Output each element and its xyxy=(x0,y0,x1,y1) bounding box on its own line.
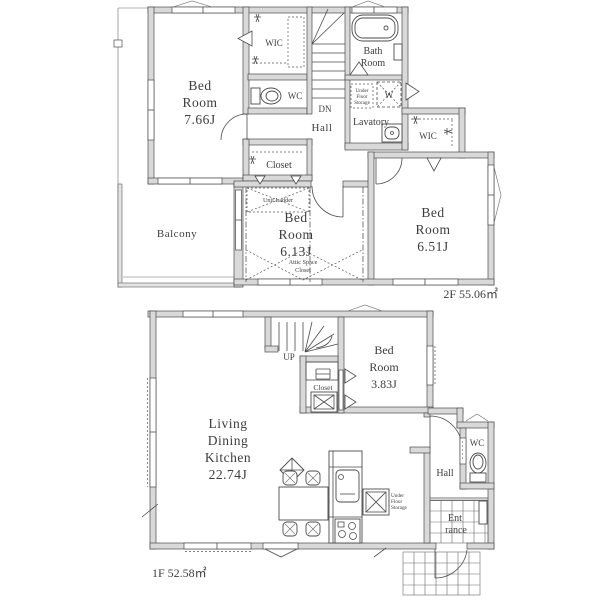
wic2-opening-icon xyxy=(427,158,441,171)
room-label-entrance: rance xyxy=(445,525,467,536)
room-label-bedroom-613: Room xyxy=(278,227,313,242)
room-label-bedroom-383: Room xyxy=(369,360,399,374)
stair-landing xyxy=(306,362,338,380)
wall xyxy=(467,543,494,549)
wall xyxy=(300,356,306,413)
wall xyxy=(248,108,307,114)
unit-ladder-label: Unit Ladder xyxy=(263,197,293,204)
underfloor-storage-box-1f xyxy=(363,489,389,515)
wall xyxy=(410,447,430,453)
floor1-area-label: 1F 52.58㎡ xyxy=(152,566,207,580)
room-label-bedroom-383: Bed xyxy=(374,343,393,357)
eaves-outline xyxy=(118,8,149,284)
downpipe-marker xyxy=(114,40,122,47)
room-label-balcony: Balcony xyxy=(157,228,197,240)
room-label-bedroom-766: 7.66J xyxy=(184,112,215,127)
wall xyxy=(345,143,408,150)
room-label-lavatory: Lavatory xyxy=(353,117,389,128)
wall xyxy=(243,7,249,114)
floor2-plan: Bed Room 7.66J WIC WC DN Hall Bath Room … xyxy=(114,1,501,301)
kitchen-counter-icon xyxy=(329,451,362,543)
entry-door-arc xyxy=(435,549,467,578)
stairs-up-label: UP xyxy=(283,352,295,362)
wall xyxy=(234,181,311,187)
room-label-closet-1f: Closet xyxy=(313,383,333,392)
room-label-bedroom-651: Bed xyxy=(421,205,444,220)
wall xyxy=(345,75,402,80)
floor1-plan: UP Closet Bed Room 3.83J Living Dining K… xyxy=(142,305,494,595)
room-label-bedroom-383: 3.83J xyxy=(371,377,397,391)
roof-vent-icon xyxy=(466,414,488,421)
wall xyxy=(307,7,312,114)
balcony-wall xyxy=(118,283,240,287)
stairs-down-icon xyxy=(312,9,345,98)
wall xyxy=(248,74,307,80)
room-label-bedroom-766: Bed xyxy=(188,78,211,93)
floorplan-canvas: Bed Room 7.66J WIC WC DN Hall Bath Room … xyxy=(0,0,600,600)
roof-vent-icon xyxy=(173,1,212,7)
washer-label: W xyxy=(385,90,394,100)
wall xyxy=(243,175,312,181)
room-label-bedroom-651: 6.51J xyxy=(417,239,448,254)
room-label-bath: Bath xyxy=(364,46,383,57)
room-label-hall-2f: Hall xyxy=(312,122,333,134)
room-label-bath: Room xyxy=(361,58,386,69)
bedroom-door-icon xyxy=(339,369,356,410)
room-label-hall-1f: Hall xyxy=(436,468,453,479)
wall xyxy=(368,152,494,158)
wall xyxy=(265,317,271,349)
wall xyxy=(243,139,312,145)
floorplan-drawing: Bed Room 7.66J WIC WC DN Hall Bath Room … xyxy=(0,0,600,600)
room-label-ldk: Kitchen xyxy=(205,450,251,465)
room-label-bedroom-766: Room xyxy=(182,95,217,110)
wall xyxy=(265,346,278,352)
wall xyxy=(368,152,374,285)
wall xyxy=(460,483,494,489)
roof-vent-icon xyxy=(352,1,385,7)
room-label-ldk: Dining xyxy=(208,433,249,448)
floor2-area-label: 2F 55.06㎡ xyxy=(443,287,498,301)
underfloor-storage-label-1f: Storage xyxy=(391,505,408,511)
room-label-entrance: Ent xyxy=(448,513,462,524)
dining-table-icon xyxy=(279,458,328,536)
casement-window-mark xyxy=(494,167,501,223)
balcony-wall xyxy=(118,184,122,287)
room-label-wic2: WIC xyxy=(419,131,437,141)
room-label-wc-2f: WC xyxy=(288,91,303,101)
underfloor-storage-label-2f: Storage xyxy=(354,100,371,106)
porch-tiles xyxy=(403,549,480,595)
room-label-closet-2f: Closet xyxy=(266,160,292,171)
room-label-bedroom-651: Room xyxy=(415,222,450,237)
stairs-dn-label: DN xyxy=(319,104,332,114)
room-label-bedroom-613: 6.13J xyxy=(280,244,311,259)
shoe-cabinet-icon xyxy=(479,501,487,524)
lavatory-opening-icon xyxy=(406,83,419,100)
wall xyxy=(402,108,465,114)
room-label-wic1: WIC xyxy=(265,38,283,48)
wall xyxy=(424,448,430,543)
stairs-up-icon xyxy=(279,322,338,352)
room-label-bedroom-613: Bed xyxy=(284,210,307,225)
room-label-wc-1f: WC xyxy=(470,438,485,448)
roof-vent-icon xyxy=(348,305,382,311)
toilet-icon xyxy=(251,88,281,104)
wall xyxy=(459,108,465,158)
stove-icon xyxy=(335,519,360,543)
wall xyxy=(402,7,408,150)
attic-space-label: Closet xyxy=(295,267,311,274)
room-label-ldk: Living xyxy=(209,416,248,431)
room-label-ldk: 22.74J xyxy=(209,467,248,482)
attic-space-label: Attic Space xyxy=(289,259,318,266)
